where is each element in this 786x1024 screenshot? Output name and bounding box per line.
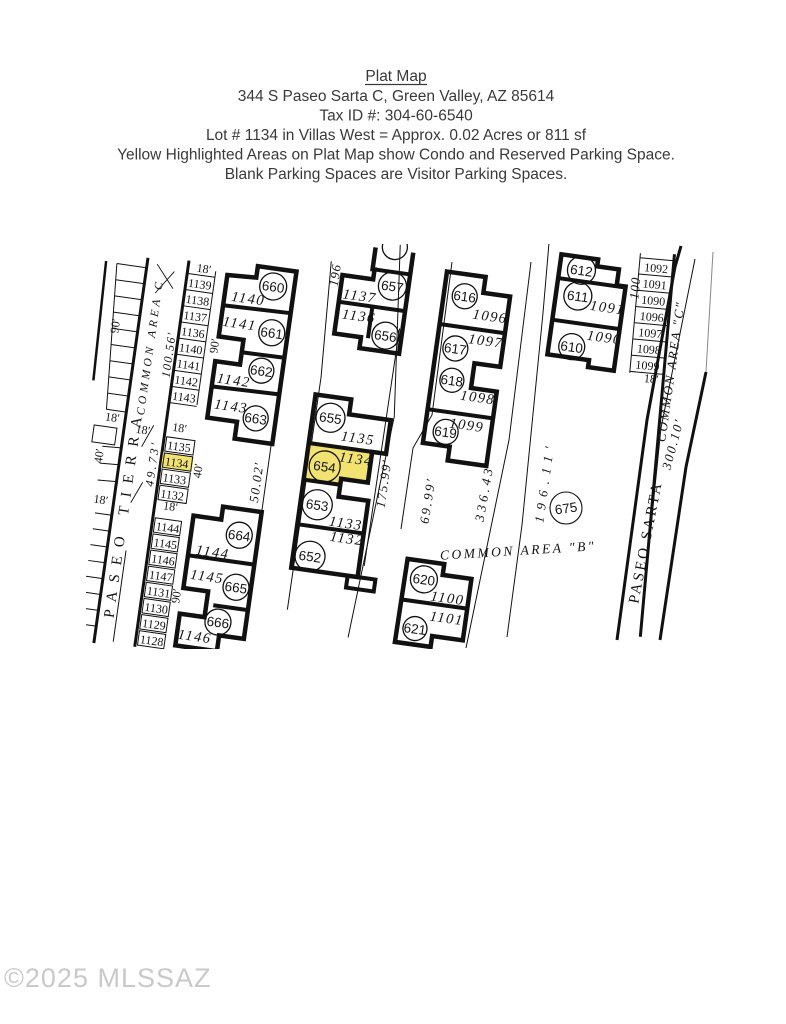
svg-text:652: 652 (298, 548, 322, 566)
svg-text:Plat Map: Plat Map (365, 68, 426, 85)
svg-text:656: 656 (373, 327, 397, 345)
svg-text:18′: 18′ (104, 409, 121, 425)
svg-text:40′: 40′ (91, 447, 107, 464)
svg-text:Blank Parking Spaces are Visit: Blank Parking Spaces are Visitor Parking… (225, 166, 568, 183)
svg-text:Tax ID #: 304-60-6540: Tax ID #: 304-60-6540 (319, 108, 473, 125)
svg-text:662: 662 (249, 362, 273, 380)
svg-text:1091: 1091 (642, 276, 667, 292)
svg-text:18′: 18′ (93, 492, 110, 508)
svg-text:620: 620 (412, 571, 436, 589)
svg-text:661: 661 (259, 324, 283, 342)
svg-text:90′: 90′ (107, 317, 123, 334)
svg-text:344 S Paseo Sarta C, Green Val: 344 S Paseo Sarta C, Green Valley, AZ 85… (238, 88, 555, 105)
svg-text:18′: 18′ (135, 422, 152, 438)
svg-text:1090: 1090 (641, 293, 666, 309)
svg-text:657: 657 (380, 278, 404, 296)
svg-text:612: 612 (569, 262, 593, 280)
svg-text:611: 611 (566, 288, 589, 306)
svg-text:675: 675 (554, 500, 578, 518)
svg-text:18′: 18′ (162, 498, 179, 514)
svg-text:90′: 90′ (206, 337, 222, 354)
svg-text:Yellow Highlighted Areas on Pl: Yellow Highlighted Areas on Plat Map sho… (117, 147, 675, 164)
svg-text:Lot # 1134 in Villas West = Ap: Lot # 1134 in Villas West = Approx. 0.02… (206, 127, 587, 144)
svg-text:100: 100 (626, 276, 643, 300)
svg-text:621: 621 (403, 620, 427, 638)
svg-text:1092: 1092 (644, 260, 669, 276)
svg-text:18′: 18′ (196, 261, 213, 277)
svg-text:665: 665 (224, 579, 248, 597)
svg-text:616: 616 (452, 288, 476, 306)
svg-text:617: 617 (443, 340, 467, 358)
svg-text:653: 653 (305, 496, 329, 514)
svg-text:©2025 MLSSAZ: ©2025 MLSSAZ (4, 963, 212, 993)
svg-text:1096: 1096 (639, 309, 664, 325)
svg-text:610: 610 (559, 338, 583, 356)
svg-text:618: 618 (440, 372, 464, 390)
svg-text:40′: 40′ (190, 462, 206, 479)
svg-text:18′: 18′ (643, 371, 659, 386)
svg-text:1097: 1097 (638, 325, 663, 341)
svg-text:654: 654 (312, 458, 337, 476)
svg-text:666: 666 (206, 614, 230, 632)
svg-text:18′: 18′ (171, 420, 188, 436)
svg-text:664: 664 (227, 527, 252, 545)
svg-text:655: 655 (318, 409, 342, 427)
